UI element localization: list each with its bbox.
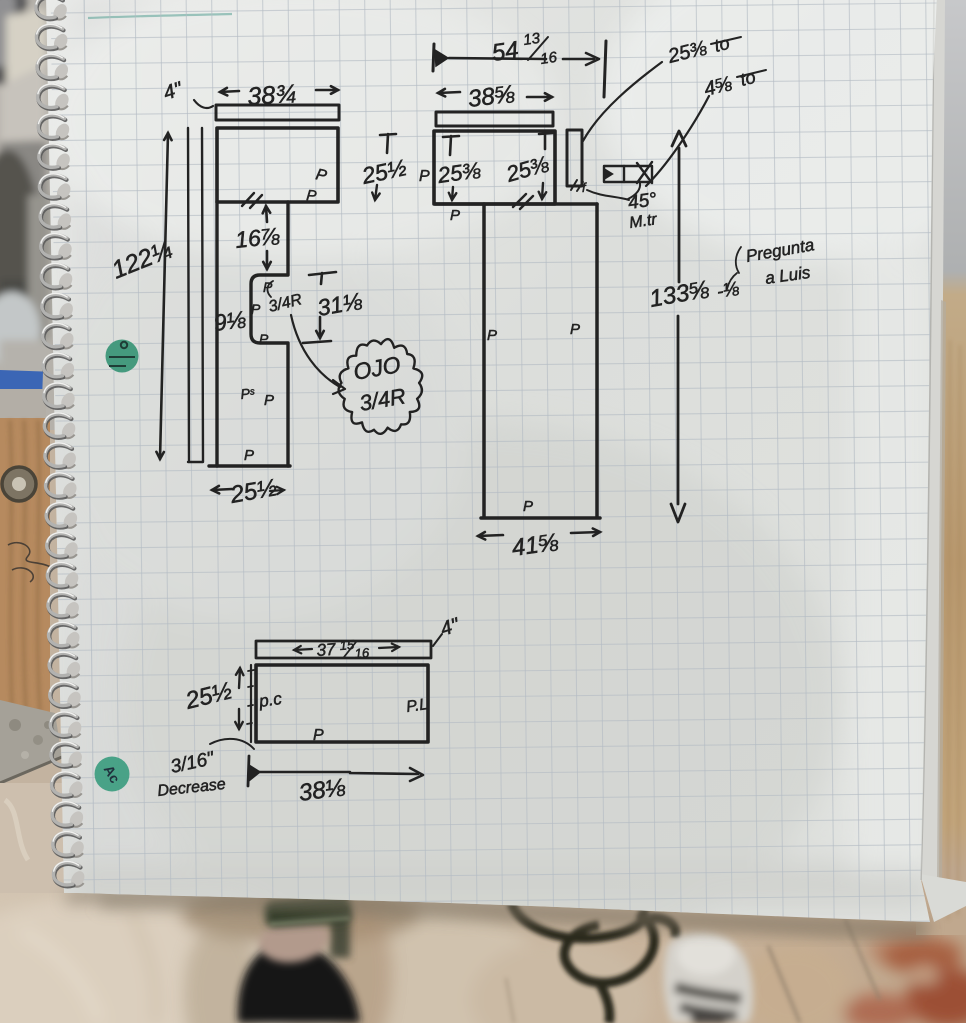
svg-text:-⅛: -⅛ (715, 278, 741, 303)
svg-text:P: P (306, 187, 317, 205)
svg-text:54: 54 (490, 36, 520, 66)
svg-text:P: P (244, 447, 254, 464)
svg-text:P: P (487, 327, 497, 344)
svg-text:p.c: p.c (257, 689, 284, 711)
svg-text:37: 37 (316, 640, 337, 660)
svg-text:45°: 45° (627, 189, 659, 214)
svg-text:P.L: P.L (405, 696, 429, 716)
svg-text:Pˢ: Pˢ (240, 385, 256, 402)
svg-text:16: 16 (354, 645, 370, 661)
svg-text:P: P (251, 301, 261, 317)
svg-text:P: P (450, 207, 460, 224)
svg-text:P: P (264, 392, 274, 409)
svg-text:16⅞: 16⅞ (234, 222, 281, 253)
svg-text:P: P (313, 727, 324, 744)
svg-text:P: P (523, 498, 533, 515)
svg-text:38⅝: 38⅝ (466, 80, 516, 112)
svg-text:9⅛: 9⅛ (212, 306, 248, 336)
svg-text:P: P (259, 331, 269, 347)
svg-text:P: P (570, 321, 580, 338)
svg-text:P: P (419, 168, 430, 185)
svg-text:16: 16 (539, 49, 559, 68)
